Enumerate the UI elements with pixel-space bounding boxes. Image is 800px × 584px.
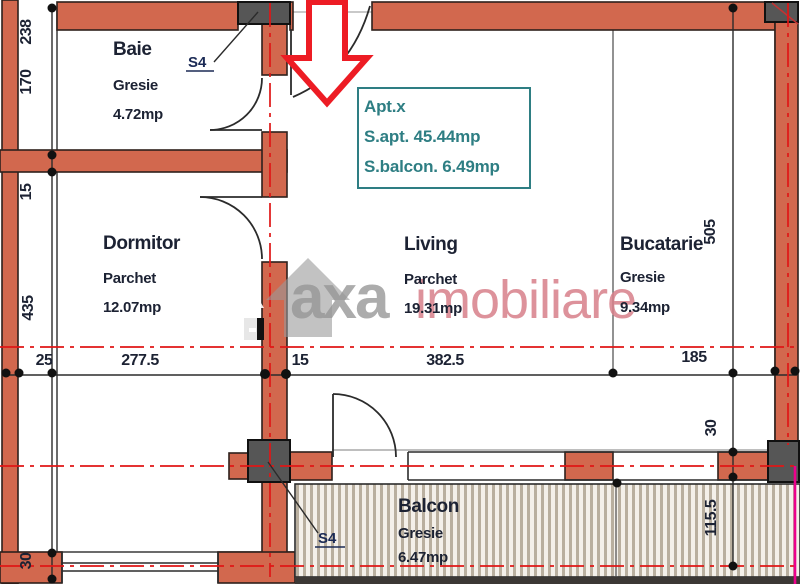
dim-382-5: 382.5 (426, 352, 464, 369)
baie-name: Baie (113, 39, 152, 60)
watermark-brand-left: axa (290, 263, 390, 332)
dim-435: 435 (20, 295, 37, 321)
dim-277-5: 277.5 (121, 352, 159, 369)
apartment-info-box: Apt.x S.apt. 45.44mp S.balcon. 6.49mp (358, 88, 530, 188)
dim-185: 185 (681, 349, 707, 366)
dim-15-mid: 15 (292, 352, 309, 369)
wall-top-b (372, 2, 775, 30)
column-top-right (765, 2, 798, 22)
balcon-floor: Gresie (398, 525, 443, 542)
dormitor-area: 12.07mp (103, 299, 161, 316)
dim-30-left: 30 (18, 552, 35, 569)
floor-plan-canvas: axa imobiliare Baie Gresie 4.72mp Dormit… (0, 0, 800, 584)
bucatarie-floor: Gresie (620, 269, 665, 286)
dormitor-name: Dormitor (103, 233, 181, 254)
wall-left (2, 0, 18, 584)
column-s4-bottom (248, 440, 290, 482)
balcony-outer-rail (295, 577, 800, 584)
dim-15-left: 15 (18, 183, 35, 200)
s4-label-bottom: S4 (318, 530, 337, 547)
wall-baie-south (0, 150, 287, 172)
balcon-area: 6.47mp (398, 549, 448, 566)
wall-right (775, 2, 798, 443)
dim-30-right: 30 (703, 419, 720, 436)
living-name: Living (404, 234, 458, 255)
floor-plan: axa imobiliare Baie Gresie 4.72mp Dormit… (0, 0, 800, 584)
dim-238: 238 (18, 19, 35, 45)
wall-bottom-mid (218, 552, 295, 583)
wall-middle-1 (262, 20, 287, 75)
living-area: 19.31mp (404, 300, 462, 317)
dim-505: 505 (702, 219, 719, 245)
bucatarie-area: 9.34mp (620, 299, 670, 316)
living-floor: Parchet (404, 271, 457, 288)
dim-170: 170 (18, 69, 35, 95)
baie-floor: Gresie (113, 77, 158, 94)
column-s4-top (238, 2, 290, 24)
dim-25: 25 (36, 352, 53, 369)
wall-middle-2 (262, 132, 287, 197)
dim-115-5: 115.5 (703, 499, 720, 536)
balcony-floor-hatch (295, 484, 800, 577)
baie-area: 4.72mp (113, 106, 163, 123)
balcon-name: Balcon (398, 496, 459, 517)
bucatarie-name: Bucatarie (620, 234, 703, 255)
wall-top-a (57, 2, 238, 30)
info-apt-id: Apt.x (364, 97, 406, 116)
s4-label-top: S4 (188, 54, 207, 71)
info-balcon-area: S.balcon. 6.49mp (364, 157, 500, 176)
balcony (295, 484, 800, 584)
info-apt-area: S.apt. 45.44mp (364, 127, 480, 146)
dormitor-floor: Parchet (103, 270, 156, 287)
